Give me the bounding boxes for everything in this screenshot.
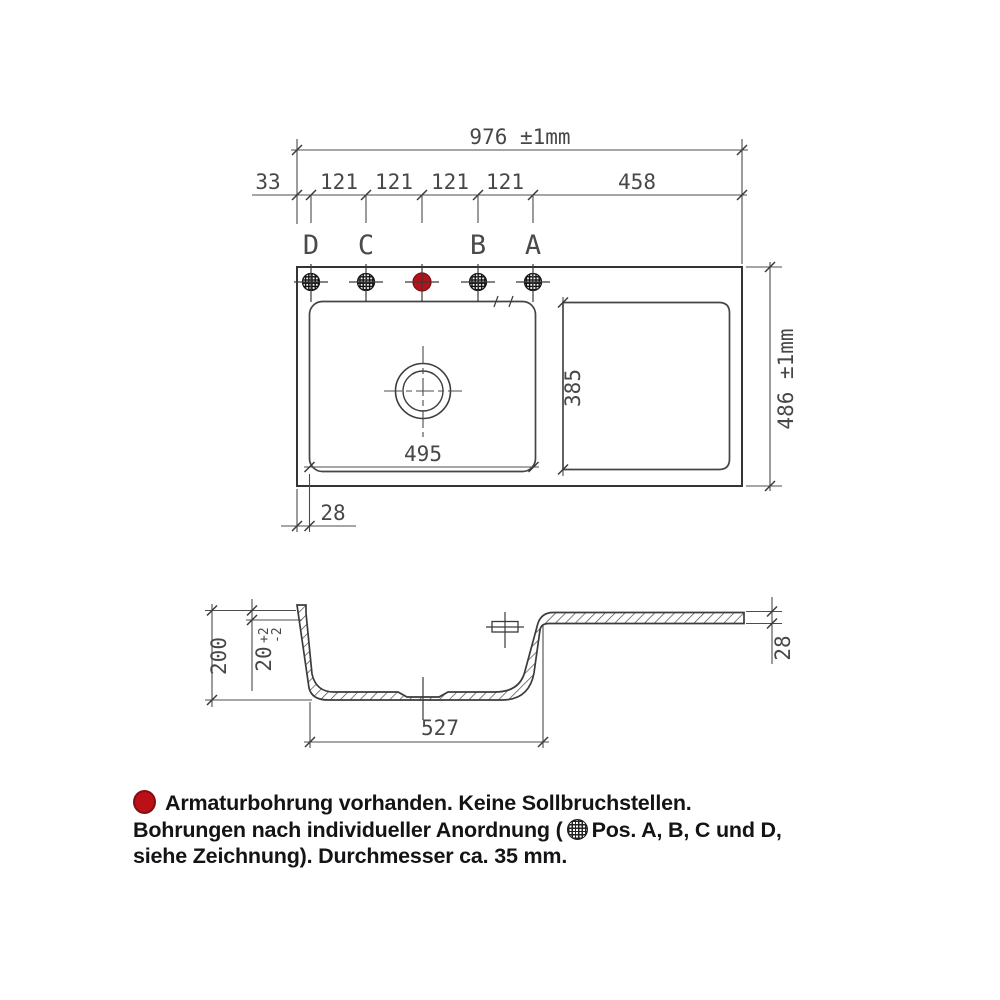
legend-line-1-text: Armaturbohrung vorhanden. Keine Sollbruc… <box>165 791 692 815</box>
legend-hatch-circle-icon <box>567 819 588 840</box>
hole-label-B: B <box>470 230 486 261</box>
legend: Armaturbohrung vorhanden. Keine Sollbruc… <box>133 790 913 870</box>
dim-basin-bottom-width: 527 <box>304 626 549 748</box>
dim-overall-depth-label: 486 ±1mm <box>774 328 798 429</box>
technical-drawing-page: 976 ±1mm 33 121 121 121 121 458 D <box>0 0 1000 1000</box>
dim-basin-bottom-width-label: 527 <box>421 716 459 740</box>
dim-deck-thickness-label: 28 <box>771 635 795 660</box>
dim-chain-121-2: 121 <box>375 170 413 194</box>
tap-holes <box>294 264 550 302</box>
hole-crosshairs <box>294 264 550 302</box>
dim-rim-height: 20 +2 -2 <box>246 599 302 691</box>
dim-drainer-length-label: 385 <box>561 369 585 407</box>
dim-overall-depth: 486 ±1mm <box>746 262 798 491</box>
dim-chain-121-1: 121 <box>320 170 358 194</box>
legend-red-dot-icon <box>133 790 156 814</box>
legend-line-2-after: Pos. A, B, C und D, <box>592 818 782 842</box>
dim-rim-offset: 28 <box>281 474 356 532</box>
dim-rim-offset-label: 28 <box>320 501 345 525</box>
dim-overall-width-label: 976 ±1mm <box>469 125 570 149</box>
hole-label-C: C <box>358 230 374 261</box>
section-profile <box>297 605 744 700</box>
section-tap-hole-symbol <box>486 612 524 648</box>
hole-label-D: D <box>303 230 319 261</box>
section-view: 200 20 +2 -2 527 <box>205 597 795 748</box>
dim-chain: 33 121 121 121 121 458 <box>252 170 747 223</box>
dim-depth-label: 200 <box>207 637 231 675</box>
hole-label-A: A <box>525 230 541 261</box>
hole-position-labels: D C B A <box>303 230 541 261</box>
dim-chain-458: 458 <box>618 170 656 194</box>
legend-line-2-before: Bohrungen nach individueller Anordnung ( <box>133 818 563 842</box>
dim-rim-height-label: 20 <box>252 646 276 671</box>
legend-line-1: Armaturbohrung vorhanden. Keine Sollbruc… <box>133 790 913 817</box>
dim-chain-121-3: 121 <box>431 170 469 194</box>
dim-basin-width-label: 495 <box>404 442 442 466</box>
dim-drainer-length: 385 <box>558 297 585 476</box>
dim-rim-tol-minus: -2 <box>270 627 285 643</box>
drainer-outline <box>563 303 730 470</box>
dim-chain-121-4: 121 <box>486 170 524 194</box>
sink-outline <box>297 267 742 486</box>
drain-outlet <box>384 346 462 437</box>
dim-deck-thickness: 28 <box>746 597 795 664</box>
dim-chain-33: 33 <box>255 170 280 194</box>
legend-line-3: siehe Zeichnung). Durchmesser ca. 35 mm. <box>133 843 913 870</box>
plan-view: 976 ±1mm 33 121 121 121 121 458 D <box>252 125 798 532</box>
legend-line-2: Bohrungen nach individueller Anordnung (… <box>133 817 913 844</box>
dim-basin-width: 495 <box>304 442 539 472</box>
